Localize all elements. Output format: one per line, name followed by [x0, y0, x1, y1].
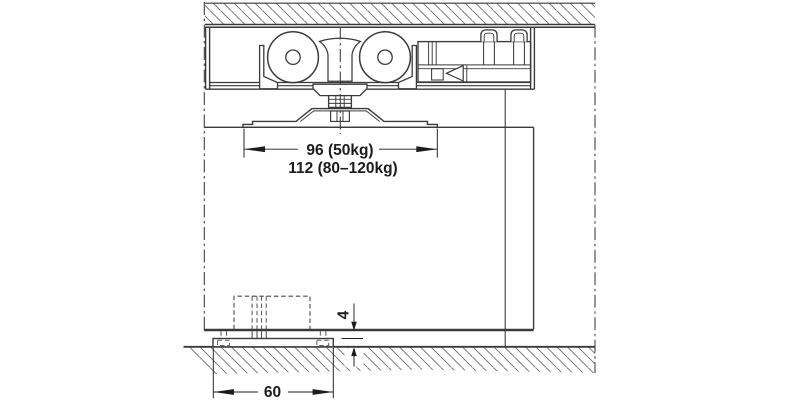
dim-label-carriage-width-50kg: 96 (50kg) — [306, 142, 373, 159]
roller-carriage — [260, 32, 417, 108]
floor-guide-hidden-body — [234, 296, 310, 329]
wheel-hub-rear — [378, 50, 392, 64]
soft-close-mechanism — [418, 30, 531, 82]
floor-guide-plate — [213, 339, 333, 347]
dim-label-carriage-width-120kg: 112 (80–120kg) — [288, 160, 397, 177]
dim-label-floor-clearance: 4 — [336, 310, 353, 319]
dim-label-floor-guide-length: 60 — [264, 384, 281, 400]
dimension-carriage-width: 96 (50kg) 112 (80–120kg) — [244, 129, 437, 177]
drawing-canvas: 96 (50kg) 112 (80–120kg) 60 4 — [0, 0, 800, 400]
ceiling-section — [205, 3, 595, 27]
running-rail — [210, 83, 531, 86]
guide-pin — [252, 331, 266, 338]
technical-drawing-sliding-door-fitting: 96 (50kg) 112 (80–120kg) 60 4 — [0, 0, 800, 400]
wheel-hub-front — [286, 50, 300, 64]
